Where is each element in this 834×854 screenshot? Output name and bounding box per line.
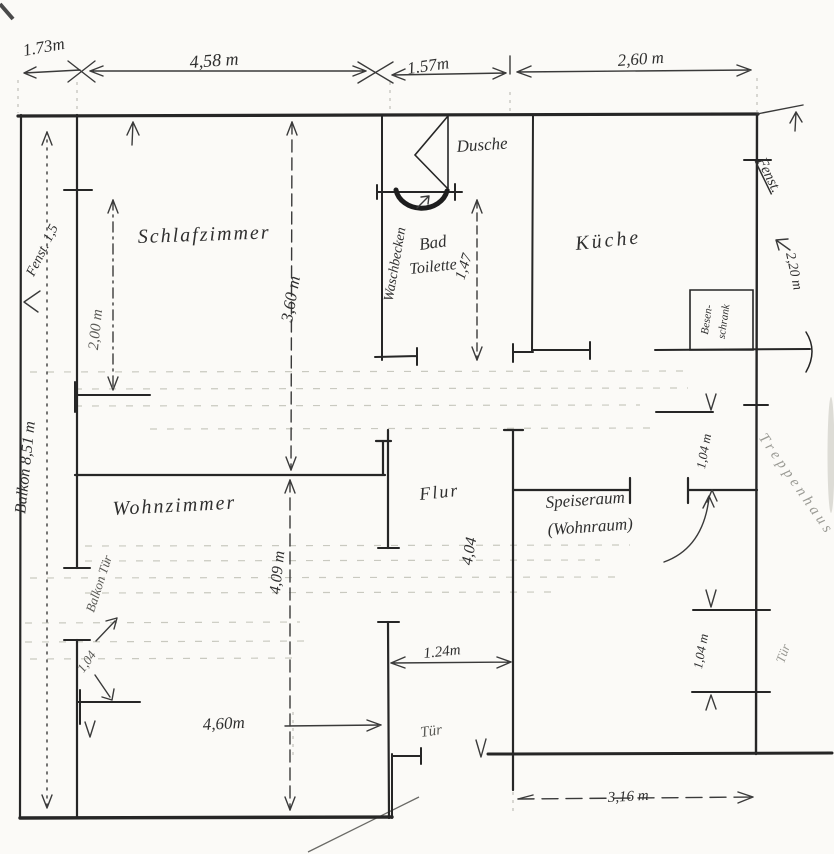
room-label-toilette: Toilette — [409, 256, 458, 278]
door-label-tuer-flur: Tür — [419, 722, 443, 741]
room-label-balkon: Balkon 8,51 m — [12, 420, 39, 514]
shower-triangle — [415, 116, 449, 192]
arrow-tuer-flur — [476, 739, 486, 757]
door-label-tuer-right: Tür — [773, 641, 794, 665]
wall-flur-left — [388, 430, 389, 818]
arrow-speiseraum — [664, 496, 714, 562]
room-label-kueche: Küche — [573, 226, 642, 255]
dim-label-schlafzimmer-breite: 4,58 m — [189, 49, 239, 72]
dim-label-flur-tiefe: 4,04 — [459, 536, 481, 567]
dim-label-schlafzimmer-tiefe: 3,60 m — [277, 275, 304, 325]
room-label-wohnzimmer: Wohnzimmer — [112, 492, 237, 520]
door-label-balkon-tuer: Balkon Tür — [82, 552, 115, 614]
wall-bad-bottom — [375, 344, 533, 365]
wall-top — [18, 114, 758, 116]
wall-wohnzimmer-top — [75, 441, 391, 475]
arrow-fenster-right — [776, 239, 790, 250]
dim-label-flur-breite: 1.24m — [423, 642, 462, 662]
wall-speiseraum-left — [504, 430, 523, 790]
label-treppenhaus: Treppenhaus — [755, 431, 834, 539]
room-label-schlafzimmer: Schlafzimmer — [137, 221, 271, 248]
room-label-speiseraum-2: (Wohnraum) — [547, 514, 634, 539]
chevron-fenster-left — [24, 291, 40, 312]
scan-artifacts — [0, 4, 834, 852]
dim-label-wohnzimmer-tiefe: 4,09 m — [267, 550, 288, 595]
room-label-speiseraum-1: Speiseraum — [545, 488, 625, 512]
wall-bottom-left — [20, 817, 392, 818]
label-besenschrank-2: schrank — [716, 302, 733, 339]
room-label-flur: Flur — [417, 480, 460, 504]
label-besenschrank-1: Besen- — [699, 304, 715, 336]
dim-200-arrows — [108, 122, 139, 390]
window-label-fenster-right-size: 2,20 m — [782, 251, 805, 291]
dim-label-speiseraum-breite: 3,16 m — [606, 788, 649, 806]
dim-top-schlafzimmer — [90, 62, 393, 83]
window-label-fenster-left: Fenst. 1,5 — [23, 222, 61, 279]
dim-label-tuer-unten: 1,04 m — [690, 632, 711, 669]
scanned-floor-plan: 1.73m 4,58 m 1.57m 2,60 m Schlafzimmer 3… — [0, 0, 834, 854]
fixture-label-waschbecken: Waschbecken — [382, 226, 410, 302]
arrow-window-right — [790, 112, 802, 131]
dim-label-balkon-breite: 1.73m — [21, 34, 66, 60]
dim-label-wohnzimmer-breite: 4,60m — [202, 713, 245, 734]
wall-bottom-right — [488, 753, 832, 754]
dim-460 — [285, 720, 381, 731]
wall-right — [756, 115, 757, 754]
dim-label-fenster-oben: 1,04 m — [693, 432, 714, 469]
right-edge-mark — [806, 332, 812, 372]
arrow-balkon-tuer — [96, 618, 117, 641]
room-label-dusche: Dusche — [455, 133, 509, 156]
labels: 1.73m 4,58 m 1.57m 2,60 m Schlafzimmer 3… — [12, 34, 834, 806]
tick-flur-door — [378, 548, 399, 622]
wall-kueche-bottom — [533, 342, 810, 359]
dim-label-schlafzimmer-innen: 2,00 m — [86, 308, 106, 350]
fixtures — [396, 116, 449, 208]
arrow-wohnzimmer-tuer — [85, 675, 114, 737]
wall-stub-schlafzimmer — [75, 382, 150, 412]
room-label-bad: Bad — [418, 231, 448, 254]
dimension-lines — [24, 56, 803, 810]
wall-bad-kueche — [532, 115, 533, 352]
dim-top-balkon — [24, 61, 95, 82]
dim-label-bad-tiefe: 1,47 — [453, 250, 477, 281]
floor-plan-canvas: 1.73m 4,58 m 1.57m 2,60 m Schlafzimmer 3… — [0, 0, 834, 854]
walls — [18, 114, 832, 818]
dim-label-kueche-breite: 2,60 m — [617, 48, 664, 70]
